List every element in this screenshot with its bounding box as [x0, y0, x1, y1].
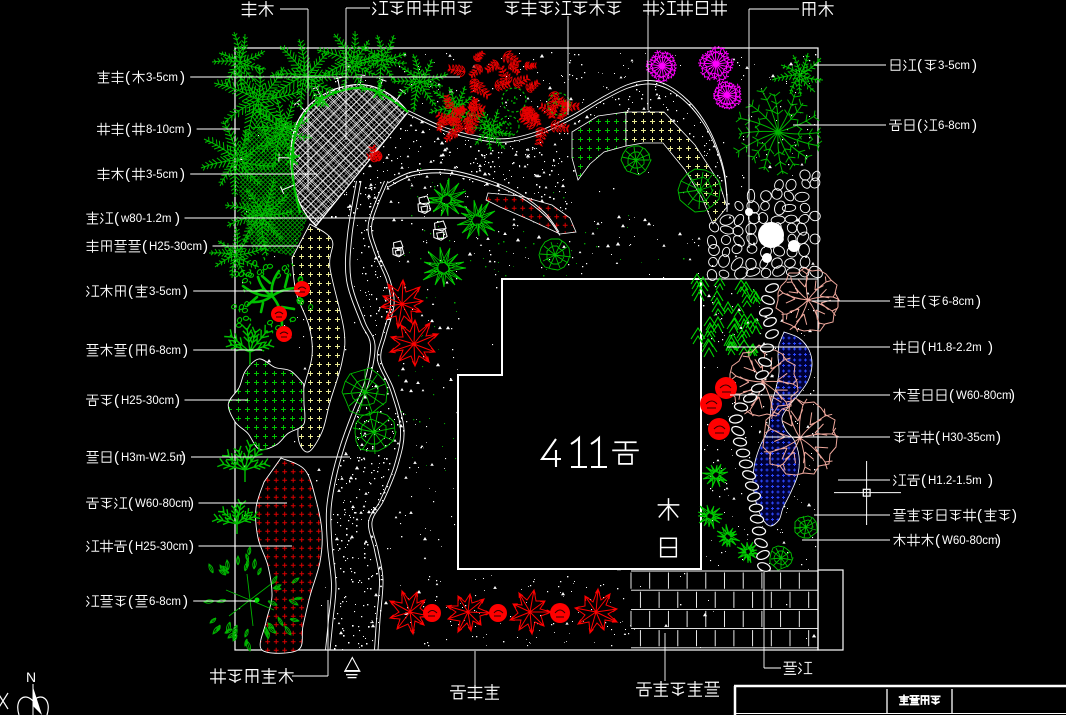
- svg-text:(: (: [128, 593, 133, 610]
- svg-text:): ): [972, 117, 977, 134]
- svg-text:3-5cm: 3-5cm: [146, 72, 178, 84]
- svg-text:W60-80cm: W60-80cm: [942, 535, 998, 547]
- svg-text:N: N: [26, 669, 36, 685]
- svg-text:): ): [187, 121, 192, 138]
- svg-text:H1.8-2.2m: H1.8-2.2m: [928, 342, 982, 354]
- svg-text:3-5cm: 3-5cm: [149, 286, 181, 298]
- svg-text:): ): [996, 532, 1001, 549]
- svg-text:6-8cm: 6-8cm: [942, 296, 974, 308]
- svg-text:(: (: [977, 507, 982, 524]
- svg-text:(: (: [114, 449, 119, 466]
- svg-text:): ): [180, 69, 185, 86]
- svg-text:): ): [988, 472, 993, 489]
- svg-text:): ): [183, 593, 188, 610]
- svg-text:H30-35cm: H30-35cm: [942, 432, 995, 444]
- svg-text:(: (: [125, 166, 130, 183]
- svg-text:): ): [183, 283, 188, 300]
- svg-text:(: (: [949, 387, 954, 404]
- svg-text:): ): [988, 339, 993, 356]
- svg-text:): ): [996, 429, 1001, 446]
- svg-text:(: (: [128, 342, 133, 359]
- svg-text:3-5cm: 3-5cm: [938, 60, 970, 72]
- svg-text:3-5cm: 3-5cm: [146, 169, 178, 181]
- svg-text:): ): [183, 342, 188, 359]
- svg-text:): ): [976, 293, 981, 310]
- svg-text:(: (: [921, 339, 926, 356]
- svg-text:(: (: [917, 57, 922, 74]
- svg-text:): ): [972, 57, 977, 74]
- svg-text:): ): [189, 538, 194, 555]
- svg-text:): ): [203, 238, 208, 255]
- svg-text:W60-80cm: W60-80cm: [135, 498, 191, 510]
- svg-text:): ): [1012, 507, 1017, 524]
- svg-text:): ): [175, 392, 180, 409]
- svg-text:): ): [189, 495, 194, 512]
- svg-text:H25-30cm: H25-30cm: [121, 395, 174, 407]
- svg-text:H25-30cm: H25-30cm: [135, 541, 188, 553]
- svg-text:6-8cm: 6-8cm: [938, 120, 970, 132]
- svg-text:(: (: [921, 293, 926, 310]
- svg-text:(: (: [935, 429, 940, 446]
- svg-text:): ): [180, 166, 185, 183]
- svg-text:(: (: [128, 538, 133, 555]
- svg-text:(: (: [917, 117, 922, 134]
- svg-text:(: (: [921, 472, 926, 489]
- svg-text:H25-30cm: H25-30cm: [149, 241, 202, 253]
- svg-text:W60-80cm: W60-80cm: [956, 390, 1012, 402]
- svg-text:(: (: [128, 283, 133, 300]
- svg-text:(: (: [125, 121, 130, 138]
- svg-text:): ): [175, 210, 180, 227]
- svg-text:w80-1.2m: w80-1.2m: [120, 213, 172, 225]
- svg-text:(: (: [114, 392, 119, 409]
- svg-text:(: (: [125, 69, 130, 86]
- svg-text:(: (: [935, 532, 940, 549]
- svg-text:8-10cm: 8-10cm: [146, 124, 184, 136]
- svg-text:H1.2-1.5m: H1.2-1.5m: [928, 475, 982, 487]
- svg-text:(: (: [128, 495, 133, 512]
- svg-text:): ): [181, 449, 186, 466]
- svg-text:): ): [1010, 387, 1015, 404]
- svg-text:6-8cm: 6-8cm: [149, 345, 181, 357]
- svg-text:H3m-W2.5m: H3m-W2.5m: [121, 452, 186, 464]
- svg-text:6-8cm: 6-8cm: [149, 596, 181, 608]
- svg-text:(: (: [114, 210, 119, 227]
- svg-text:(: (: [142, 238, 147, 255]
